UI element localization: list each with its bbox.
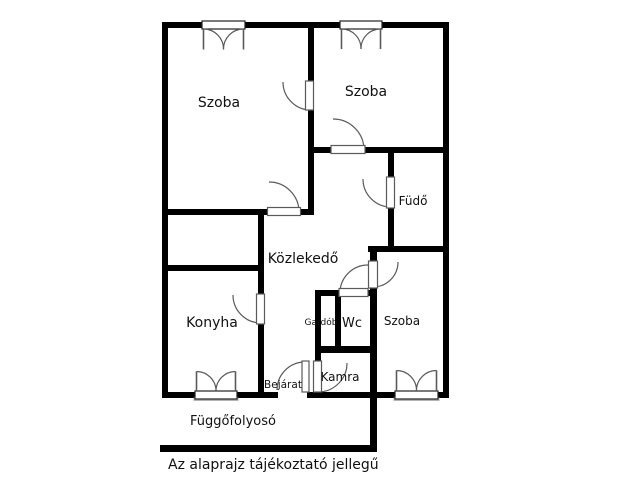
door-fudo-leaf <box>387 177 395 208</box>
wall-outer-right <box>443 22 449 398</box>
plan-disclaimer-note: Az alaprajz tájékoztató jellegű <box>168 457 379 473</box>
window-konyha-bottom-swing-arc <box>216 372 236 392</box>
wall-fuggofolyoso-edge <box>160 445 377 452</box>
window-konyha-bottom-frame <box>195 391 237 399</box>
window-szoba-right-top-swing-arc <box>342 29 362 49</box>
window-szoba-bottom-swing-arc <box>397 371 417 392</box>
door-szoba-right-leaf <box>331 146 365 154</box>
wall-szoba-divider <box>308 22 314 215</box>
window-konyha-bottom <box>194 372 239 402</box>
wall-wc-bottom-kamra-top <box>315 346 377 353</box>
window-szoba-left-top <box>202 21 245 50</box>
room-label-konyha: Konyha <box>186 315 238 331</box>
room-label-gardob: Gardób <box>305 317 338 328</box>
room-label-wc: Wc <box>342 316 362 331</box>
room-label-szoba-left: Szoba <box>198 95 240 111</box>
door-wc <box>339 265 368 297</box>
door-szoba-left-leaf <box>268 208 301 216</box>
door-szoba-bottom-leaf <box>369 261 378 288</box>
wall-szoba-right-bottom <box>308 147 449 153</box>
room-label-kamra: Kamra <box>321 370 360 384</box>
door-szoba-szoba-leaf <box>306 81 314 110</box>
door-szoba-right <box>331 119 365 154</box>
room-label-kozlekedo: Közlekedő <box>268 251 339 267</box>
wall-konyha-top <box>162 265 264 271</box>
window-konyha-bottom-swing-arc <box>197 372 217 392</box>
door-szoba-szoba <box>283 81 314 110</box>
room-label-fuggofolyoso: Függőfolyosó <box>190 414 276 429</box>
room-label-szoba-bottom: Szoba <box>384 314 420 328</box>
room-label-bejarat: Bejárat <box>264 379 302 391</box>
window-szoba-bottom-frame <box>395 391 438 399</box>
window-szoba-left-top-swing-arc <box>204 29 224 50</box>
room-label-fudo: Füdő <box>399 194 428 208</box>
window-szoba-right-top <box>340 21 382 49</box>
window-szoba-left-top-swing-arc <box>223 29 243 50</box>
door-bejarat-opening <box>278 392 307 398</box>
window-szoba-right-top-frame <box>340 21 382 29</box>
door-wc-leaf <box>339 289 368 297</box>
floor-plan-svg: SzobaSzobaFüdőKözlekedőKonyhaGardóbWcSzo… <box>0 0 640 480</box>
door-szoba-left <box>268 182 301 216</box>
window-szoba-right-top-swing-arc <box>361 29 381 49</box>
floorplan-page: SzobaSzobaFüdőKözlekedőKonyhaGardóbWcSzo… <box>0 0 640 480</box>
wall-fudo-bottom <box>368 246 449 252</box>
window-szoba-left-top-frame <box>202 21 245 29</box>
window-szoba-bottom-swing-arc <box>416 371 436 392</box>
door-konyha-leaf <box>257 294 265 324</box>
room-label-szoba-right: Szoba <box>345 84 387 100</box>
door-fudo <box>363 177 395 208</box>
door-bejarat-leaf <box>302 361 309 392</box>
door-szoba-bottom <box>369 261 399 288</box>
window-szoba-bottom <box>394 371 440 402</box>
